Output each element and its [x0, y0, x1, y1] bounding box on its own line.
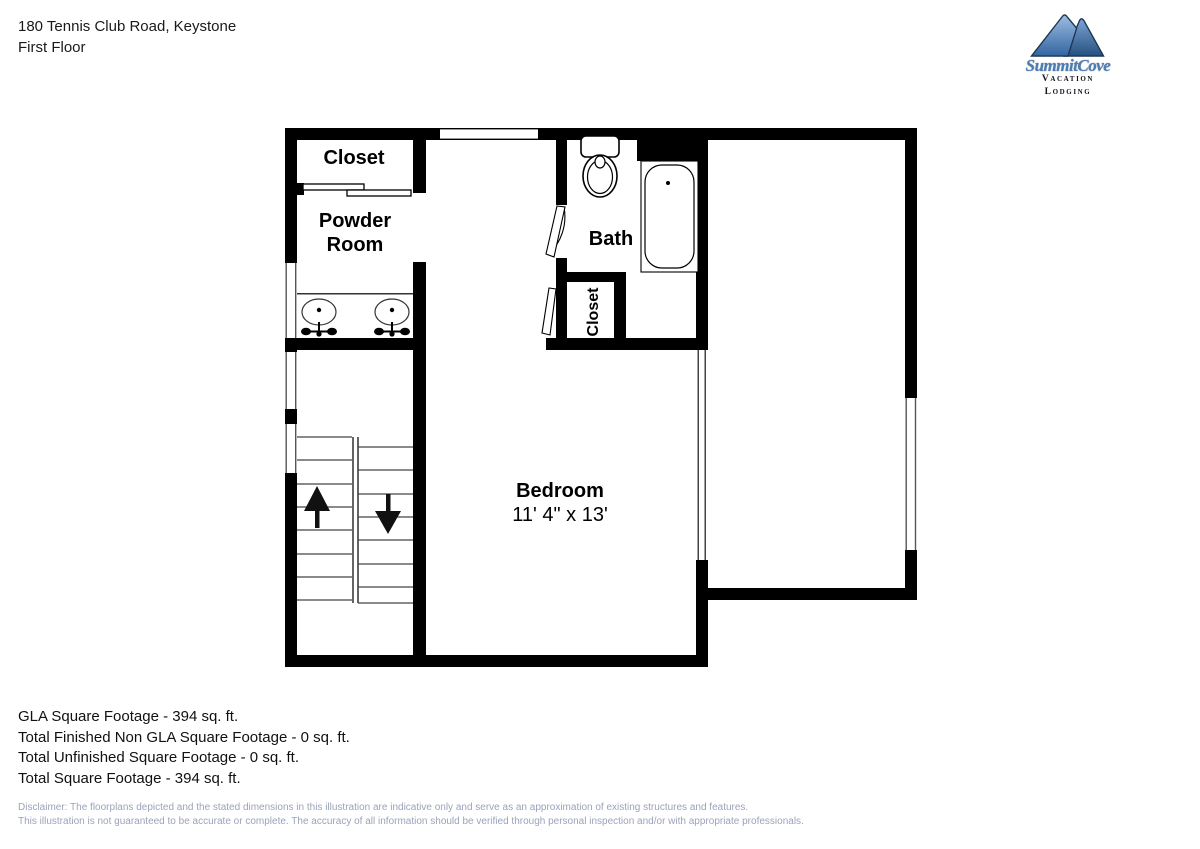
bath-room-label: Bath	[566, 227, 656, 251]
square-footage-summary: GLA Square Footage - 394 sq. ft. Total F…	[18, 707, 350, 789]
closet-room-label: Closet	[289, 146, 419, 170]
floorplan-page: 180 Tennis Club Road, Keystone First Flo…	[0, 0, 1200, 849]
unfinished-square-footage: Total Unfinished Square Footage - 0 sq. …	[18, 748, 350, 769]
disclaimer-line1: Disclaimer: The floorplans depicted and …	[18, 801, 804, 815]
left-windows	[286, 263, 297, 473]
bedroom-name: Bedroom	[440, 479, 680, 503]
vanity-sinks	[297, 293, 413, 337]
bathtub-icon	[641, 161, 698, 272]
bedroom-dimensions: 11' 4" x 13'	[440, 503, 680, 527]
bath-closet-label: Closet	[582, 278, 606, 346]
stairs-left-flight	[297, 437, 352, 600]
right-window	[906, 398, 917, 550]
toilet-icon	[581, 136, 619, 197]
gla-square-footage: GLA Square Footage - 394 sq. ft.	[18, 707, 350, 728]
powder-room-label-line2: Room	[288, 233, 422, 257]
closet-sliding-door	[297, 183, 411, 196]
stairs-up-arrow-icon	[304, 486, 330, 528]
powder-room-label: Powder Room	[288, 209, 422, 257]
finished-non-gla-square-footage: Total Finished Non GLA Square Footage - …	[18, 728, 350, 749]
total-square-footage: Total Square Footage - 394 sq. ft.	[18, 769, 350, 790]
powder-room-label-line1: Powder	[288, 209, 422, 233]
bedroom-label: Bedroom 11' 4" x 13'	[440, 479, 680, 527]
staircase	[297, 437, 413, 603]
disclaimer-text: Disclaimer: The floorplans depicted and …	[18, 801, 804, 828]
stairs-down-arrow-icon	[375, 494, 401, 534]
disclaimer-line2: This illustration is not guaranteed to b…	[18, 815, 804, 829]
bedroom-deck-partition	[698, 347, 707, 560]
bath-door	[546, 206, 565, 257]
bath-closet-door	[542, 288, 556, 335]
stairs-divider	[353, 437, 358, 603]
top-window	[440, 128, 538, 140]
